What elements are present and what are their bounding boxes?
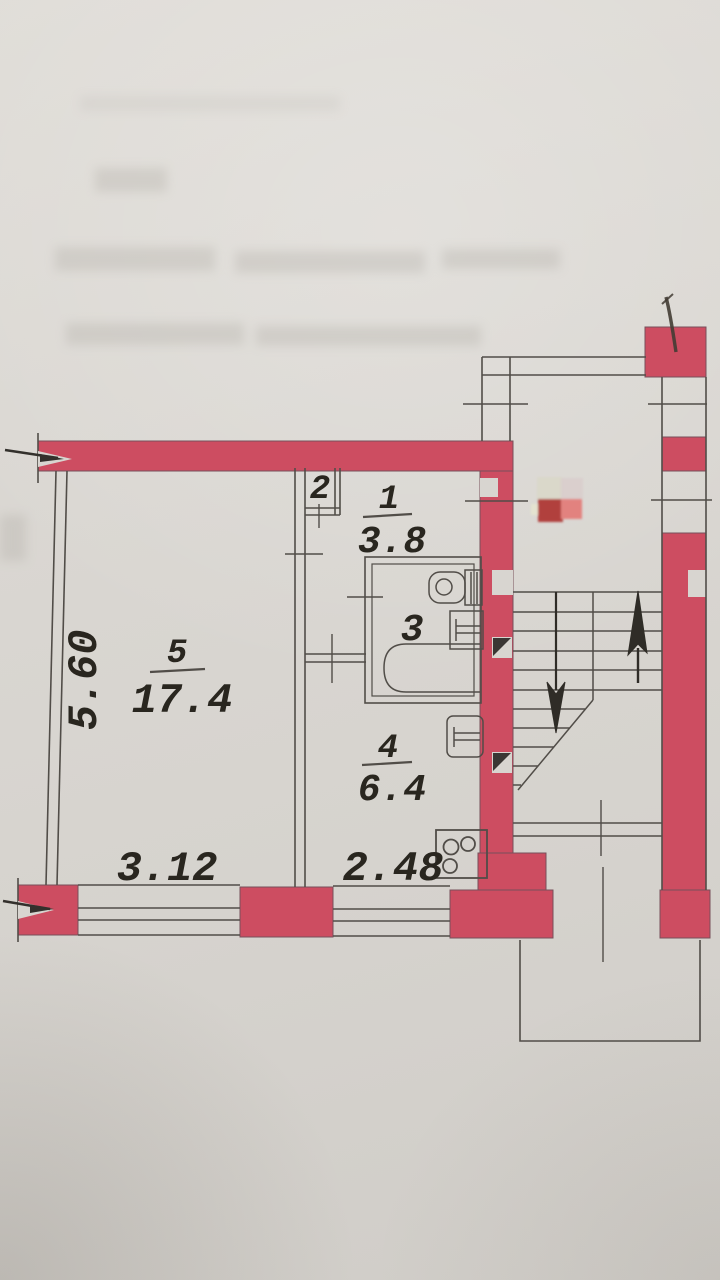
bottom-wall-pier-middle — [240, 887, 333, 937]
room-1-number: 1 — [379, 481, 399, 519]
stamp-pink-blob — [561, 499, 582, 519]
apartment-stairwell-wall — [480, 471, 513, 890]
stairwell-right-wall-segment-1 — [662, 437, 706, 471]
room-labels: 5 17.4 1 3.8 2 3 4 6.4 — [132, 471, 427, 812]
floor-plan-drawing: 5 17.4 1 3.8 2 3 4 6.4 5.60 3.12 2.48 — [0, 0, 720, 1280]
bathtub — [384, 644, 480, 692]
room-1-label: 1 3.8 — [358, 481, 426, 564]
partition-room5 — [295, 468, 305, 887]
paper-showthrough-smudges — [0, 96, 560, 561]
fixtures — [384, 570, 487, 878]
top-exterior-wall — [38, 441, 513, 471]
dim-room4-width: 2.48 — [343, 845, 444, 893]
stamp-dark-blob — [538, 499, 563, 522]
kitchen-sink — [447, 716, 483, 757]
floor-plan-photo: 5 17.4 1 3.8 2 3 4 6.4 5.60 3.12 2.48 — [0, 0, 720, 1280]
bottom-wall-pier-right — [450, 890, 553, 938]
up-arrow-icon — [628, 591, 647, 683]
redaction-stamp — [531, 477, 583, 522]
entrance-porch-outline — [520, 940, 700, 1041]
wall-niche-upper — [492, 570, 513, 595]
dim-room5-height: 5.60 — [61, 630, 109, 731]
room-5-label: 5 17.4 — [132, 635, 233, 725]
right-wall-niche — [688, 570, 706, 597]
wall-stem — [478, 853, 546, 890]
partition-kitchen — [305, 654, 366, 662]
down-arrow-icon — [547, 592, 565, 733]
room-5-number: 5 — [167, 635, 187, 673]
stairwell-bottom-pier — [660, 890, 710, 938]
room-1-area: 3.8 — [358, 521, 426, 564]
room-4-label: 4 6.4 — [358, 730, 426, 812]
room-5-area: 17.4 — [132, 677, 233, 725]
stairwell-shaft-top — [482, 357, 646, 441]
room-3-number: 3 — [401, 609, 424, 652]
room-4-area: 6.4 — [358, 769, 426, 812]
bottom-window-room4 — [333, 886, 450, 936]
apartment-entrance-opening — [480, 478, 498, 497]
room-2-number: 2 — [310, 471, 330, 509]
dim-room5-width: 3.12 — [117, 845, 218, 893]
